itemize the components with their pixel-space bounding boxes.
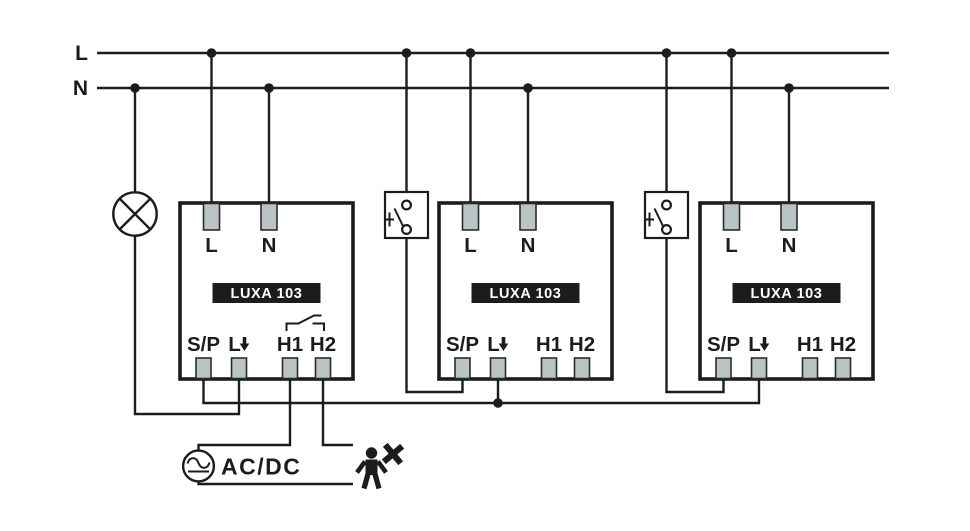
junction-dot	[784, 83, 794, 93]
terminal-label-load: L	[228, 333, 241, 356]
contact-bottom	[402, 225, 411, 234]
neutral-rail-label: N	[73, 77, 88, 100]
contact-bottom	[662, 225, 671, 234]
push-button-icon	[645, 192, 688, 238]
junction-dot	[466, 48, 476, 58]
terminal-H2	[316, 358, 331, 379]
junction-dot	[662, 48, 672, 58]
terminal-H1	[542, 358, 557, 379]
terminal-load	[232, 358, 247, 379]
luxa-device-3: L N LUXA 103 S/P L H1 H2	[700, 203, 873, 379]
terminal-label-L: L	[725, 234, 738, 257]
push-button-icon	[385, 192, 428, 238]
device-name: LUXA 103	[751, 286, 823, 302]
terminal-H2	[575, 358, 590, 379]
terminal-label-SP: S/P	[707, 333, 740, 356]
diagram-canvas: L N	[0, 0, 970, 531]
junction-dot	[523, 83, 533, 93]
terminal-label-N: N	[521, 234, 536, 257]
wire-sp-interconnect	[204, 378, 760, 403]
wiring-diagram: L N	[0, 0, 970, 531]
terminal-label-L: L	[205, 234, 218, 257]
power-supply-label: AC/DC	[221, 454, 301, 480]
terminal-label-H1: H1	[797, 333, 823, 356]
terminal-label-H2: H2	[569, 333, 595, 356]
source-circle	[183, 451, 214, 482]
terminal-label-N: N	[262, 234, 277, 257]
junction-dot	[727, 48, 737, 58]
person-legs	[364, 474, 379, 489]
terminal-H1	[803, 358, 818, 379]
terminal-label-H2: H2	[310, 333, 336, 356]
terminal-SP	[196, 358, 211, 379]
luxa-device-2: L N LUXA 103 S/P L H1 H2	[439, 203, 612, 379]
terminal-label-H1: H1	[277, 333, 303, 356]
device-name: LUXA 103	[231, 286, 303, 302]
person-head	[366, 447, 377, 458]
terminal-N	[261, 204, 277, 231]
lamp-cross	[120, 199, 151, 230]
terminal-label-N: N	[782, 234, 797, 257]
contact-top	[662, 201, 671, 210]
terminal-L	[204, 204, 220, 231]
live-rail-label: L	[75, 42, 88, 65]
terminal-label-load: L	[487, 333, 500, 356]
terminal-label-H1: H1	[536, 333, 562, 356]
junction-dot	[402, 48, 412, 58]
terminal-N	[520, 204, 536, 231]
terminal-H2	[836, 358, 851, 379]
terminal-L	[724, 204, 740, 231]
terminal-L	[463, 204, 479, 231]
device-name: LUXA 103	[490, 286, 562, 302]
luxa-device-1: L N LUXA 103 S/P L H1 H2	[180, 203, 353, 379]
terminal-label-H2: H2	[830, 333, 856, 356]
terminal-N	[781, 204, 797, 231]
terminal-label-L: L	[464, 234, 477, 257]
contact-top	[402, 201, 411, 210]
junction-dot	[493, 398, 503, 408]
junction-dot	[207, 48, 217, 58]
ac-wave	[188, 458, 210, 468]
person-motion-star-icon	[357, 437, 410, 488]
wire-H2-open-end	[323, 378, 353, 445]
ac-dc-source-icon	[183, 451, 214, 482]
terminal-SP	[455, 358, 470, 379]
lamp-icon	[113, 192, 156, 235]
terminal-label-SP: S/P	[187, 333, 220, 356]
junction-dot	[130, 83, 140, 93]
terminal-label-load: L	[748, 333, 761, 356]
terminal-H1	[283, 358, 298, 379]
terminal-load	[752, 358, 767, 379]
terminal-label-SP: S/P	[446, 333, 479, 356]
terminal-load	[491, 358, 506, 379]
person-torso	[366, 460, 378, 476]
power-rails: L N	[73, 42, 889, 100]
wire-acdc-open-end	[199, 481, 354, 484]
terminal-SP	[716, 358, 731, 379]
junction-dot	[264, 83, 274, 93]
